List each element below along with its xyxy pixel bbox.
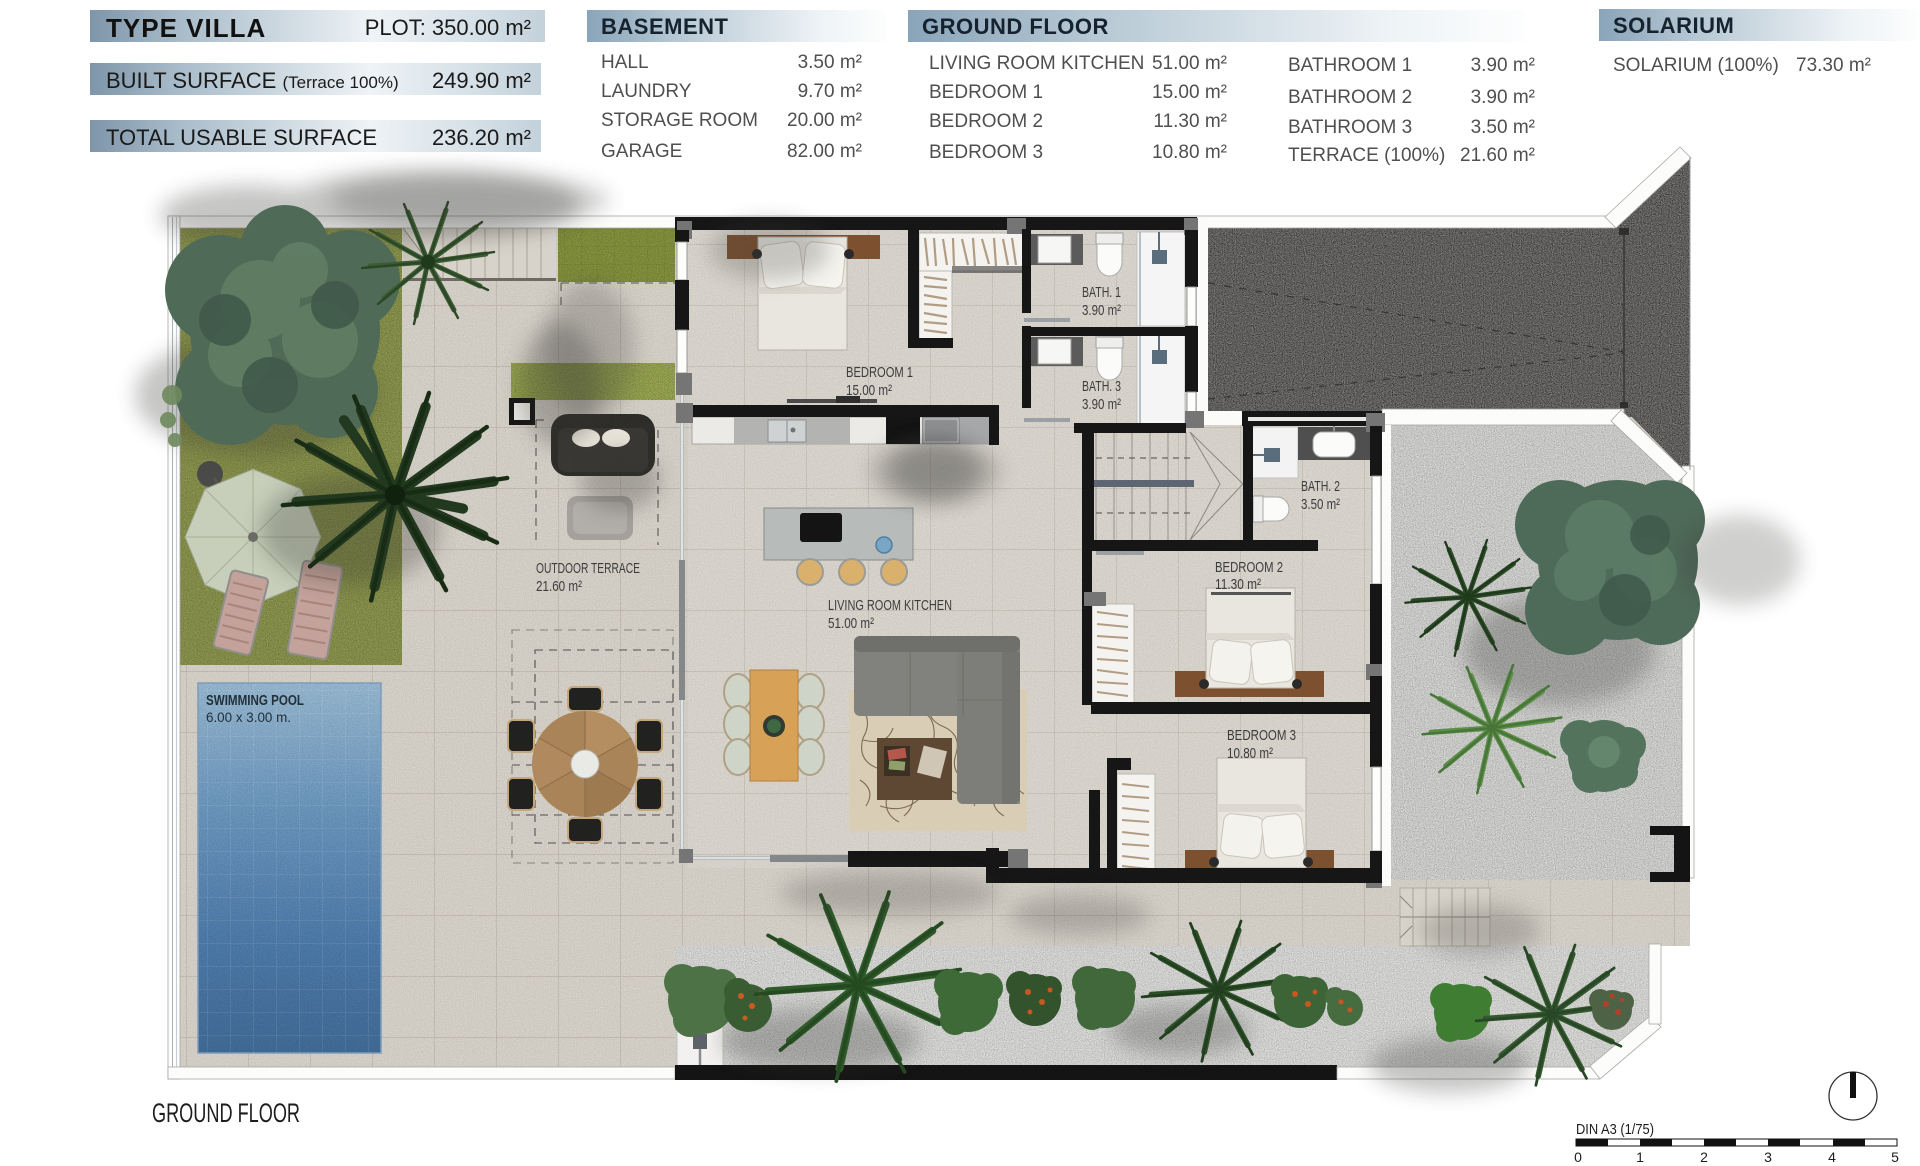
svg-text:5: 5: [1891, 1149, 1899, 1165]
svg-text:3: 3: [1764, 1149, 1772, 1165]
svg-text:4: 4: [1828, 1149, 1836, 1165]
svg-text:BATH. 1: BATH. 1: [1082, 284, 1121, 301]
svg-text:15.00 m²: 15.00 m²: [846, 382, 892, 399]
svg-text:3.90 m²: 3.90 m²: [1082, 302, 1121, 319]
svg-text:BEDROOM 3: BEDROOM 3: [1227, 727, 1296, 744]
svg-text:1: 1: [1636, 1149, 1644, 1165]
svg-text:10.80 m²: 10.80 m²: [1227, 745, 1273, 762]
svg-text:DIN A3 (1/75): DIN A3 (1/75): [1576, 1121, 1654, 1138]
svg-text:BATH. 3: BATH. 3: [1082, 378, 1121, 395]
svg-text:6.00 x 3.00 m.: 6.00 x 3.00 m.: [206, 710, 291, 725]
svg-text:51.00 m²: 51.00 m²: [828, 615, 874, 632]
svg-text:LIVING ROOM KITCHEN: LIVING ROOM KITCHEN: [828, 597, 952, 614]
svg-text:GROUND FLOOR: GROUND FLOOR: [152, 1098, 300, 1128]
svg-text:OUTDOOR TERRACE: OUTDOOR TERRACE: [536, 560, 640, 577]
svg-text:BEDROOM 2: BEDROOM 2: [1215, 559, 1283, 576]
svg-text:3.50 m²: 3.50 m²: [1301, 496, 1340, 513]
svg-text:BEDROOM 1: BEDROOM 1: [846, 364, 913, 381]
svg-text:21.60 m²: 21.60 m²: [536, 578, 582, 595]
svg-text:3.90 m²: 3.90 m²: [1082, 396, 1121, 413]
svg-text:2: 2: [1700, 1149, 1708, 1165]
svg-text:BATH. 2: BATH. 2: [1301, 478, 1340, 495]
svg-text:SWIMMING POOL: SWIMMING POOL: [206, 693, 304, 709]
svg-text:11.30 m²: 11.30 m²: [1215, 576, 1261, 593]
svg-text:0: 0: [1574, 1149, 1582, 1165]
